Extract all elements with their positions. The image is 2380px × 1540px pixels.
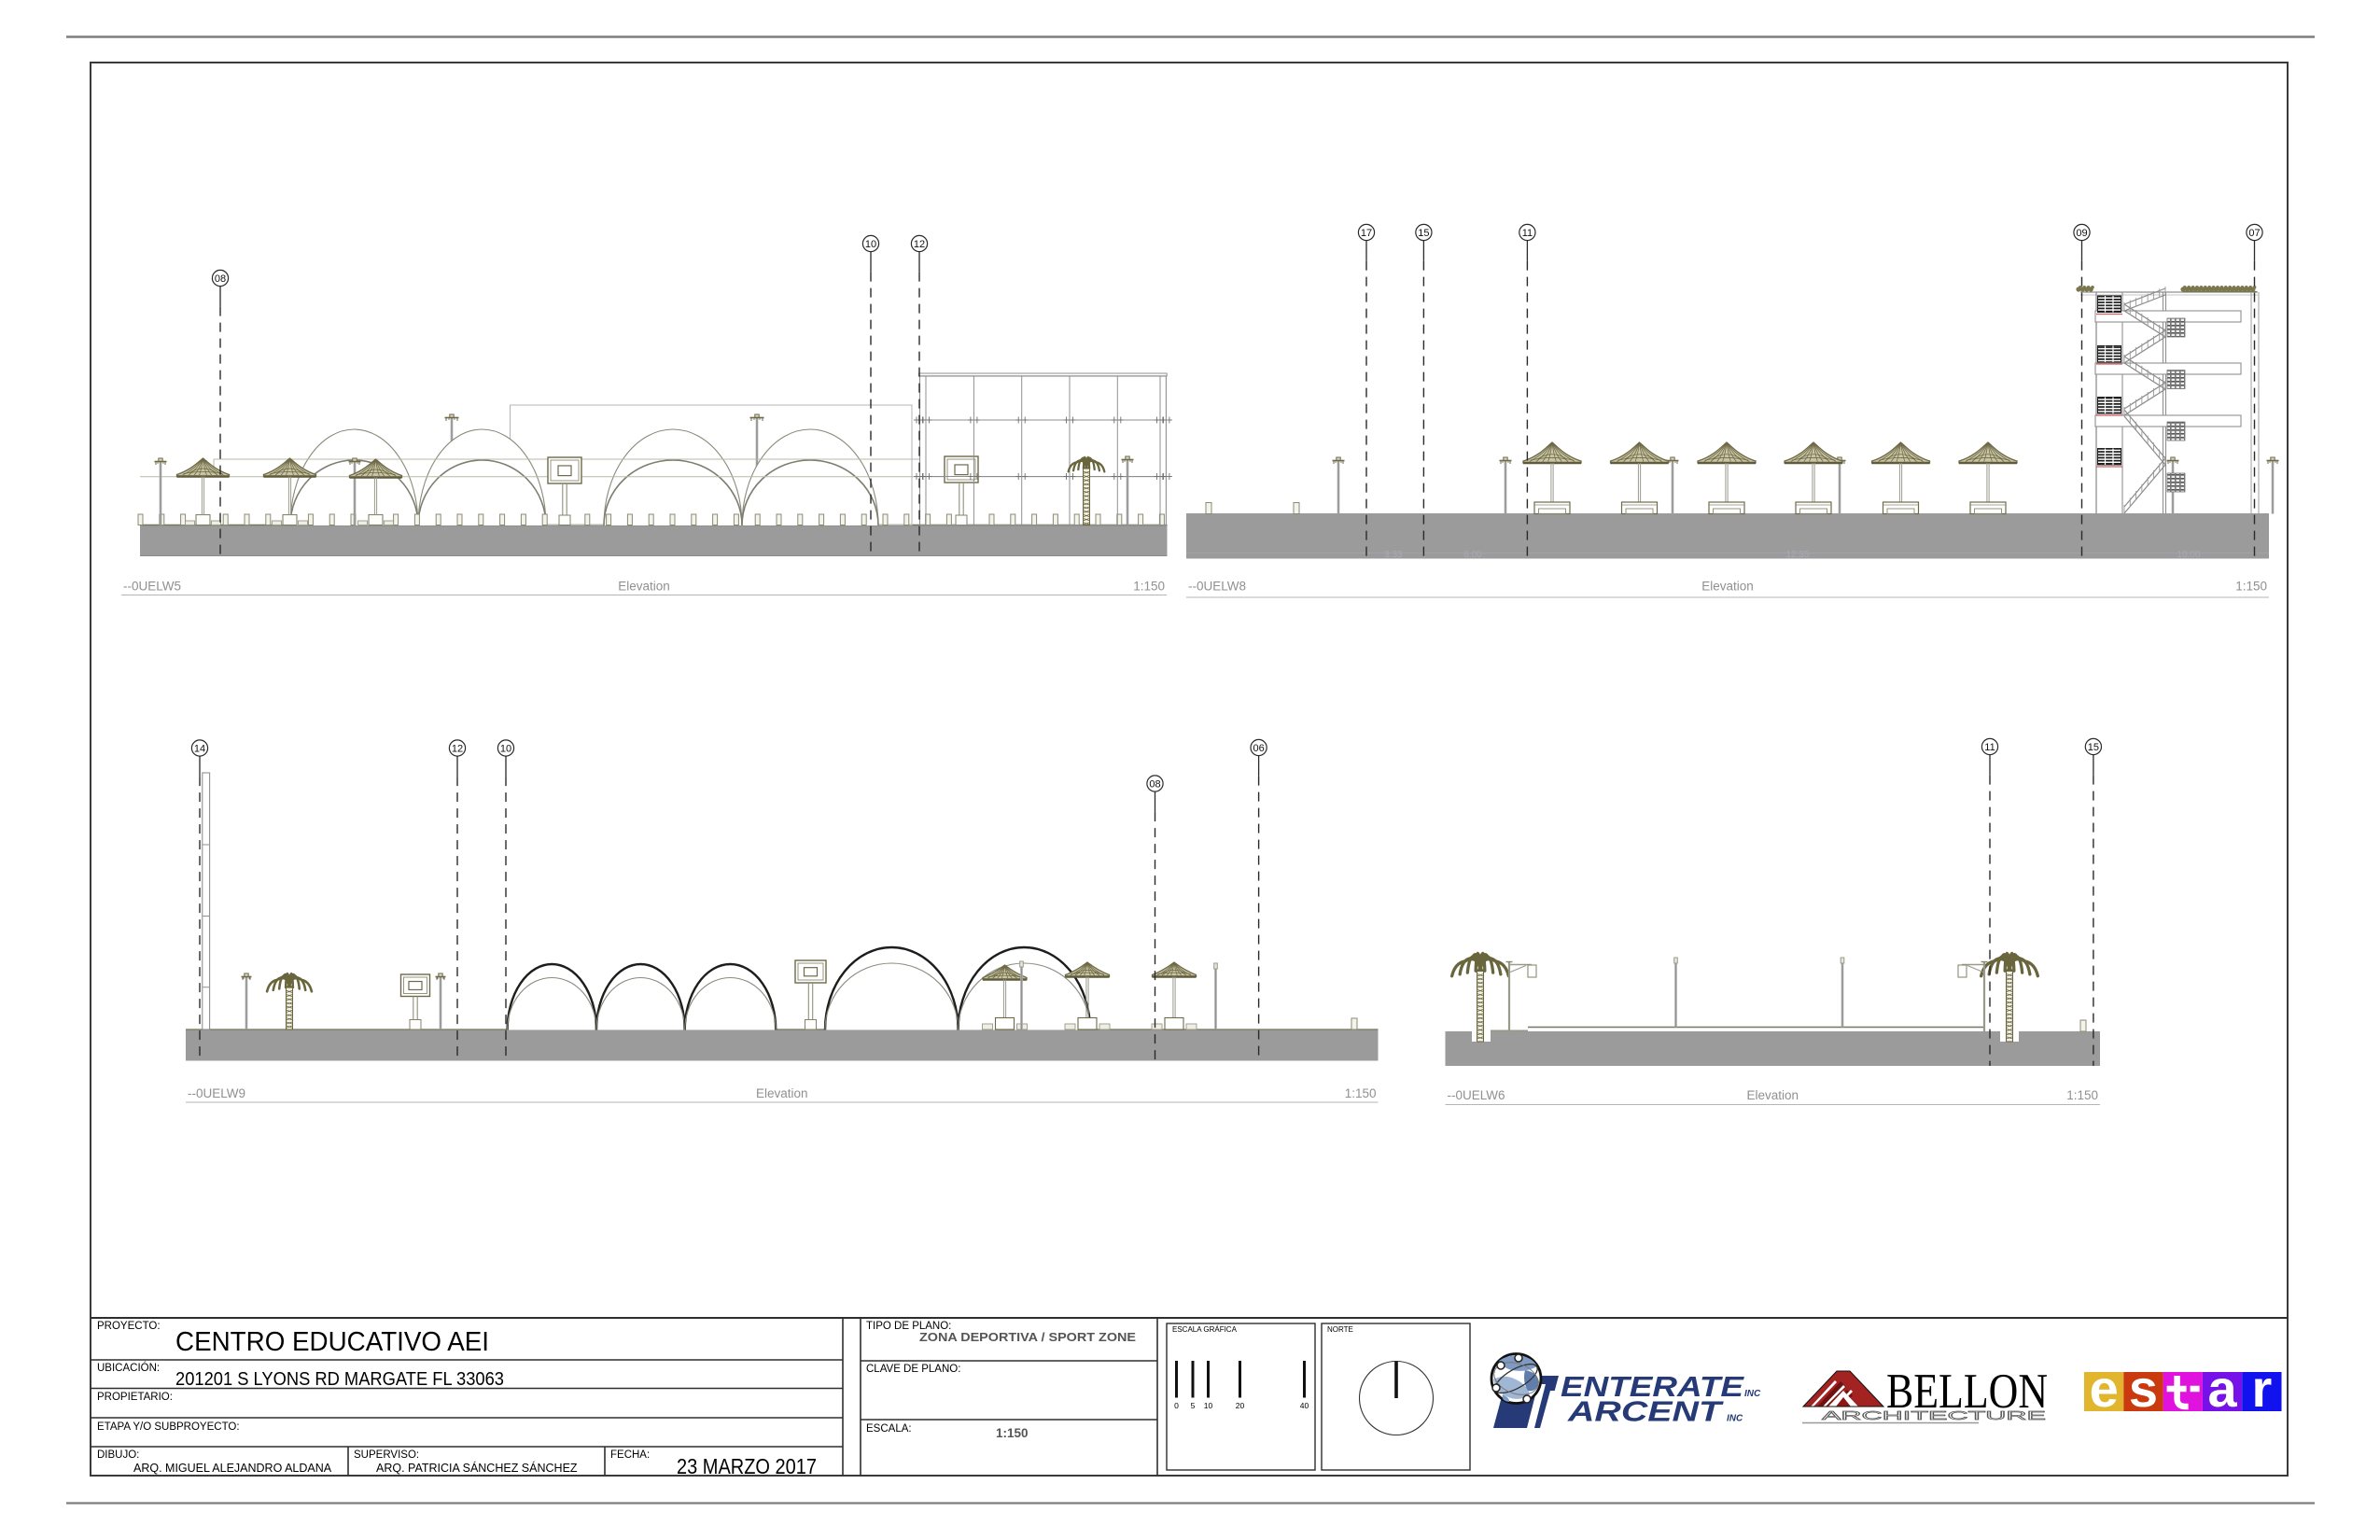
- svg-text:s: s: [2129, 1359, 2158, 1418]
- svg-text:3.33: 3.33: [1384, 550, 1403, 560]
- svg-text:ARCENT: ARCENT: [1567, 1395, 1725, 1428]
- svg-text:07: 07: [2248, 228, 2260, 239]
- svg-text:a: a: [2207, 1359, 2237, 1418]
- svg-text:1:150: 1:150: [996, 1426, 1029, 1440]
- svg-text:e: e: [2090, 1359, 2119, 1418]
- svg-text:NORTE: NORTE: [1327, 1325, 1353, 1334]
- svg-text:--0UELW8: --0UELW8: [1188, 580, 1246, 594]
- svg-text:ZONA DEPORTIVA / SPORT ZONE: ZONA DEPORTIVA / SPORT ZONE: [919, 1330, 1136, 1344]
- svg-text:Elevation: Elevation: [618, 580, 670, 594]
- svg-text:PROPIETARIO:: PROPIETARIO:: [97, 1392, 173, 1403]
- svg-text:09: 09: [2076, 228, 2087, 239]
- svg-text:15: 15: [2088, 742, 2099, 753]
- svg-text:1:150: 1:150: [2066, 1088, 2098, 1102]
- svg-text:Elevation: Elevation: [1746, 1088, 1799, 1102]
- svg-text:10.00: 10.00: [2177, 550, 2200, 560]
- svg-text:1:150: 1:150: [2235, 580, 2267, 594]
- svg-text:20: 20: [1236, 1401, 1245, 1410]
- svg-text:CENTRO EDUCATIVO AEI: CENTRO EDUCATIVO AEI: [175, 1327, 489, 1357]
- svg-text:0: 0: [1174, 1401, 1179, 1410]
- svg-text:1:150: 1:150: [1133, 580, 1165, 594]
- svg-text:SUPERVISO:: SUPERVISO:: [354, 1449, 419, 1461]
- svg-text:DIBUJO:: DIBUJO:: [97, 1449, 139, 1461]
- svg-text:--0UELW6: --0UELW6: [1448, 1088, 1505, 1102]
- svg-text:Elevation: Elevation: [756, 1086, 808, 1100]
- svg-text:06: 06: [1253, 743, 1264, 754]
- svg-text:08: 08: [1149, 778, 1160, 790]
- svg-text:12: 12: [914, 239, 925, 250]
- svg-text:17: 17: [1361, 228, 1372, 239]
- svg-text:5: 5: [1191, 1401, 1196, 1410]
- svg-text:ARQ. PATRICIA SÁNCHEZ SÁNCHEZ: ARQ. PATRICIA SÁNCHEZ SÁNCHEZ: [376, 1461, 578, 1475]
- svg-text:12: 12: [452, 743, 463, 754]
- svg-text:Elevation: Elevation: [1701, 580, 1754, 594]
- svg-text:ESCALA:: ESCALA:: [866, 1423, 912, 1435]
- svg-text:PROYECTO:: PROYECTO:: [97, 1321, 161, 1332]
- svg-text:10: 10: [500, 743, 511, 754]
- svg-text:r: r: [2251, 1359, 2272, 1418]
- svg-text:INC: INC: [1744, 1389, 1761, 1399]
- svg-text:--0UELW9: --0UELW9: [188, 1086, 245, 1100]
- svg-text:ESCALA GRÁFICA: ESCALA GRÁFICA: [1172, 1325, 1238, 1334]
- svg-text:40: 40: [1300, 1401, 1309, 1410]
- svg-text:CLAVE DE PLANO:: CLAVE DE PLANO:: [866, 1364, 960, 1375]
- svg-text:10: 10: [1204, 1401, 1213, 1410]
- svg-text:1:150: 1:150: [1345, 1086, 1377, 1100]
- svg-text:11: 11: [1984, 742, 1995, 753]
- svg-text:15: 15: [1418, 228, 1429, 239]
- svg-text:INC: INC: [1727, 1414, 1743, 1424]
- svg-text:14: 14: [194, 743, 205, 754]
- svg-text:23 MARZO 2017: 23 MARZO 2017: [677, 1454, 817, 1478]
- svg-text:12.35: 12.35: [1785, 550, 1809, 560]
- svg-text:ETAPA Y/O SUBPROYECTO:: ETAPA Y/O SUBPROYECTO:: [97, 1421, 240, 1433]
- svg-text:ARQ. MIGUEL ALEJANDRO ALDANA: ARQ. MIGUEL ALEJANDRO ALDANA: [133, 1462, 332, 1475]
- svg-text:11: 11: [1522, 228, 1533, 239]
- svg-text:--0UELW5: --0UELW5: [123, 580, 181, 594]
- svg-text:08: 08: [215, 273, 226, 285]
- svg-text:UBICACIÓN:: UBICACIÓN:: [97, 1362, 160, 1374]
- svg-text:ARCHITECTURE: ARCHITECTURE: [1822, 1408, 2047, 1422]
- svg-text:FECHA:: FECHA:: [610, 1449, 650, 1461]
- svg-text:10: 10: [865, 239, 876, 250]
- svg-text:6.00: 6.00: [1463, 550, 1482, 560]
- svg-text:201201 S LYONS RD MARGATE FL 3: 201201 S LYONS RD MARGATE FL 33063: [175, 1368, 504, 1390]
